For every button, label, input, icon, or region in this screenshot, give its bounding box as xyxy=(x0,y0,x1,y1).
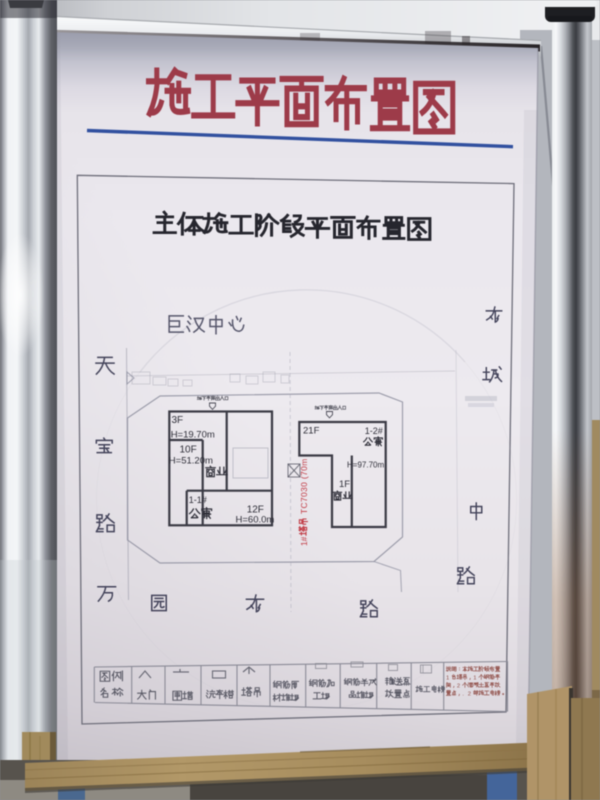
svg-text:H=51.20m: H=51.20m xyxy=(169,456,213,467)
svg-text:21F: 21F xyxy=(303,426,320,437)
svg-text:H=19.70m: H=19.70m xyxy=(171,430,215,441)
svg-text:1#: 1# xyxy=(299,536,309,546)
svg-text:2: 2 xyxy=(468,691,471,697)
svg-text:10F: 10F xyxy=(180,445,197,456)
svg-text:1: 1 xyxy=(446,675,449,681)
svg-text:3F: 3F xyxy=(172,415,184,426)
svg-text:1F: 1F xyxy=(339,479,350,490)
svg-text:TC7030 (70m: TC7030 (70m xyxy=(299,458,309,514)
svg-text:1-2#: 1-2# xyxy=(365,426,383,436)
svg-text:1-1#: 1-1# xyxy=(189,495,207,505)
svg-text:1: 1 xyxy=(473,675,476,681)
svg-text:2: 2 xyxy=(457,683,460,689)
svg-text:H=60.0m: H=60.0m xyxy=(236,515,275,526)
svg-text:H=97.70m: H=97.70m xyxy=(347,461,384,470)
